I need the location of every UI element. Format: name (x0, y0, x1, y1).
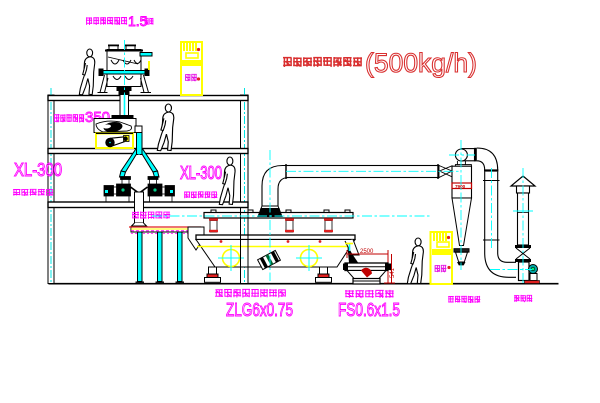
svg-text:FS0.6x1.5: FS0.6x1.5 (338, 300, 400, 320)
svg-text:ZLG6x0.75: ZLG6x0.75 (226, 300, 293, 320)
svg-text:7900: 7900 (455, 184, 466, 189)
svg-text:XL-300: XL-300 (14, 160, 62, 180)
svg-text:(500kg/h): (500kg/h) (365, 48, 477, 78)
svg-text:2500: 2500 (360, 249, 374, 255)
svg-text:XL-300: XL-300 (180, 163, 222, 183)
